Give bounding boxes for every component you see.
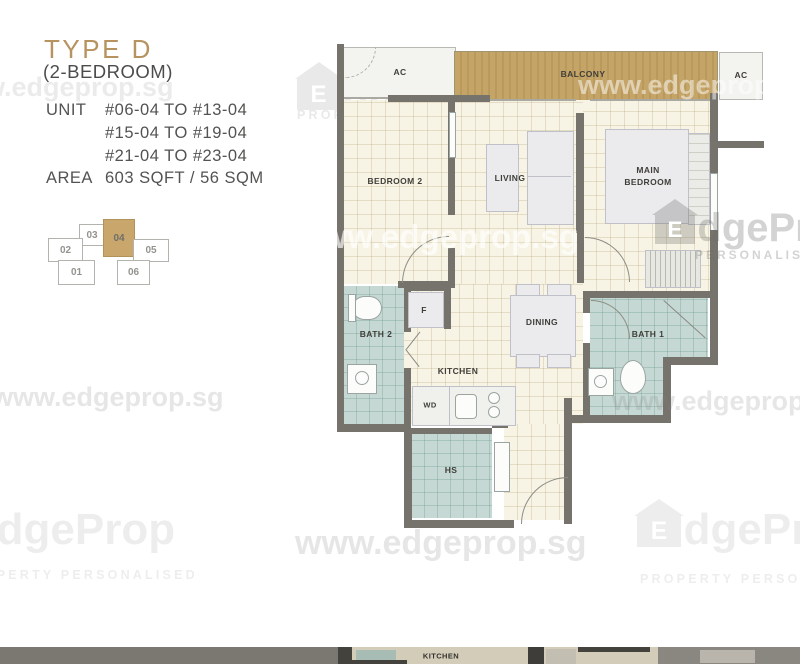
bath2-toilet-tank xyxy=(348,294,356,322)
wall-bath1-top xyxy=(583,291,713,298)
watermark-logo-bottom-left: EdgeProp xyxy=(0,512,175,547)
bath2-sink-bowl xyxy=(355,371,369,385)
wall-hs-top xyxy=(404,428,492,434)
ac-left-label: AC xyxy=(393,67,406,77)
watermark-url-center: www.edgeprop.sg xyxy=(296,218,579,256)
main-bedroom-label-line2: BEDROOM xyxy=(624,177,671,187)
key-plan-unit-label: 05 xyxy=(145,245,156,256)
watermark-logo-bottom-right: EdgeProp xyxy=(637,512,800,547)
hob-burner xyxy=(488,392,500,404)
wall-bath1-left-upper xyxy=(583,291,590,313)
key-plan-unit-label: 03 xyxy=(86,230,97,241)
floor-plan-page: www.edgeprop.sg EdgeProp PROPERTY PERSON… xyxy=(0,0,800,664)
living-label: LIVING xyxy=(495,173,526,183)
key-plan-unit-05: 05 xyxy=(133,239,169,262)
window-bedroom2-top xyxy=(344,97,388,99)
main-bedroom-label-line1: MAIN xyxy=(636,165,659,175)
wall-hs-left xyxy=(404,428,412,528)
watermark-tagline-bottom-left: PROPERTY PERSONALISED xyxy=(0,568,198,582)
next-plan-fragment xyxy=(700,650,755,663)
dining-chair xyxy=(516,354,540,368)
fridge-label: F xyxy=(421,305,427,315)
unit-label: UNIT xyxy=(46,101,87,120)
wall-fridge-niche-right xyxy=(444,284,451,329)
dining-label: DINING xyxy=(526,317,558,327)
sofa-seat-line xyxy=(528,176,571,177)
edgeprop-house-icon: E xyxy=(297,79,340,110)
next-plan-fragment xyxy=(546,649,576,664)
edgeprop-house-icon: E xyxy=(637,516,681,548)
dining-chair xyxy=(547,354,571,368)
unit-range-3: #21-04 TO #23-04 xyxy=(105,147,247,166)
watermark-url-right: www.edgeprop.sg xyxy=(612,386,800,417)
kitchen-label: KITCHEN xyxy=(438,366,479,376)
hob-burner xyxy=(488,406,500,418)
wall-bath2-right-lower xyxy=(404,368,411,432)
next-floor-plan-strip: KITCHEN xyxy=(0,647,800,664)
household-shelter-label: HS xyxy=(445,465,458,475)
hs-shelf xyxy=(494,442,510,492)
next-plan-wall xyxy=(578,647,650,652)
edgeprop-house-icon: E xyxy=(655,215,695,244)
key-plan-unit-label: 01 xyxy=(71,267,82,278)
next-plan-wall xyxy=(352,660,407,664)
wall-mainbedroom-right-upper xyxy=(710,93,718,173)
watermark-url-left: www.edgeprop.sg xyxy=(0,382,224,413)
balcony-label: BALCONY xyxy=(561,69,606,79)
next-plan-wall xyxy=(338,647,352,664)
next-plan-wall xyxy=(528,647,544,664)
key-plan-unit-01: 01 xyxy=(58,260,95,285)
ac-right-label: AC xyxy=(734,70,747,80)
household-shelter-floor xyxy=(412,434,492,518)
key-plan-unit-04-highlighted: 04 xyxy=(103,219,135,257)
area-value: 603 SQFT / 56 SQM xyxy=(105,169,264,188)
key-plan-unit-label: 04 xyxy=(113,233,124,244)
bath2-toilet xyxy=(352,296,382,320)
bedroom2-label: BEDROOM 2 xyxy=(367,176,422,186)
bath2-label: BATH 2 xyxy=(360,329,392,339)
watermark-logo-right: EdgeProp xyxy=(655,212,800,244)
key-plan-unit-label: 06 xyxy=(128,267,139,278)
watermark-url-balcony: www.edgeprop.sg xyxy=(578,70,800,101)
window-bedroom2-wall xyxy=(449,112,456,158)
unit-range-2: #15-04 TO #19-04 xyxy=(105,124,247,143)
watermark-brand-text: dgeProp xyxy=(0,512,175,547)
wall-bedroom2-top xyxy=(388,95,490,102)
unit-range-1: #06-04 TO #13-04 xyxy=(105,101,247,120)
bath1-label: BATH 1 xyxy=(632,329,664,339)
unit-type-subtitle: (2-BEDROOM) xyxy=(43,61,173,83)
key-plan-unit-06: 06 xyxy=(117,260,150,285)
wardrobe xyxy=(645,250,701,288)
kitchen-sink xyxy=(455,394,477,419)
key-plan-unit-label: 02 xyxy=(60,245,71,256)
sofa xyxy=(527,131,574,225)
washer-dryer-label: WD xyxy=(423,401,436,410)
watermark-tagline-right: PERSONALISED xyxy=(695,248,800,262)
watermark-url-bottom: www.edgeprop.sg xyxy=(295,524,587,563)
wall-bath2-bottom xyxy=(337,424,409,432)
bath1-sink-bowl xyxy=(594,375,607,388)
watermark-brand-text: dgeProp xyxy=(697,212,800,244)
wall-right-extension xyxy=(718,141,764,148)
next-plan-kitchen-label: KITCHEN xyxy=(423,652,459,661)
key-plan-unit-02: 02 xyxy=(48,238,83,262)
watermark-brand-text: dgeProp xyxy=(684,512,800,547)
wall-living-right xyxy=(576,113,584,233)
area-label: AREA xyxy=(46,169,93,188)
watermark-tagline-bottom-right: PROPERTY PERSONALISED xyxy=(640,572,800,586)
